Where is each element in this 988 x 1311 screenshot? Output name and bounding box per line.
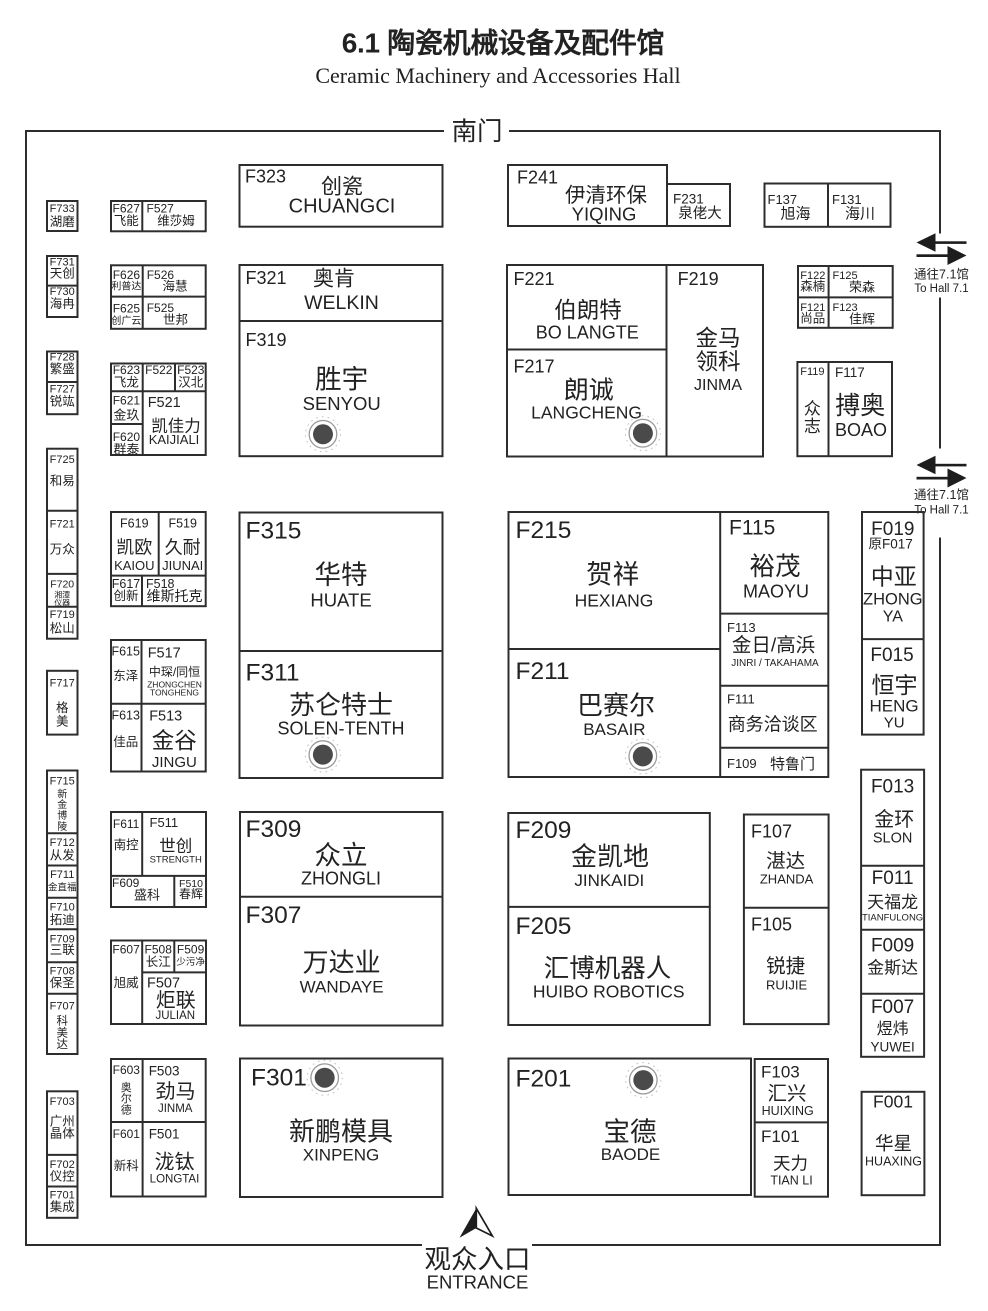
- svg-text:通往7.1馆: 通往7.1馆: [914, 266, 969, 281]
- svg-text:海川: 海川: [845, 206, 875, 223]
- svg-text:WANDAYE: WANDAYE: [300, 978, 384, 997]
- svg-text:原F017: 原F017: [868, 537, 912, 552]
- svg-text:F241: F241: [517, 167, 558, 187]
- svg-text:RUIJIE: RUIJIE: [766, 978, 808, 993]
- svg-text:奥: 奥: [121, 1080, 132, 1094]
- svg-text:东泽: 东泽: [113, 669, 138, 683]
- svg-text:HUAXING: HUAXING: [865, 1154, 922, 1168]
- svg-text:创广云: 创广云: [111, 314, 141, 327]
- svg-text:宝德: 宝德: [604, 1117, 657, 1147]
- svg-text:巴赛尔: 巴赛尔: [577, 690, 655, 720]
- svg-text:佳辉: 佳辉: [849, 311, 875, 326]
- svg-text:YU: YU: [884, 715, 905, 732]
- svg-text:盛科: 盛科: [134, 887, 160, 902]
- svg-text:旭威: 旭威: [114, 976, 140, 990]
- svg-text:F710: F710: [50, 901, 75, 913]
- svg-text:LANGCHENG: LANGCHENG: [531, 403, 642, 423]
- svg-text:F107: F107: [751, 821, 792, 841]
- svg-text:F625: F625: [113, 301, 141, 315]
- svg-text:KAIOU: KAIOU: [114, 558, 154, 573]
- svg-text:F321: F321: [246, 268, 287, 288]
- svg-text:F117: F117: [835, 365, 865, 380]
- svg-text:金谷: 金谷: [152, 728, 197, 753]
- svg-text:F721: F721: [50, 519, 75, 531]
- svg-text:HUIBO ROBOTICS: HUIBO ROBOTICS: [533, 982, 685, 1002]
- svg-text:F613: F613: [111, 708, 140, 722]
- svg-text:F221: F221: [514, 269, 555, 289]
- svg-text:天创: 天创: [50, 267, 75, 281]
- svg-text:F607: F607: [112, 943, 140, 957]
- svg-text:F319: F319: [246, 330, 287, 350]
- svg-text:观众入口: 观众入口: [425, 1245, 531, 1275]
- svg-text:金玖: 金玖: [113, 408, 139, 423]
- svg-text:TIAN LI: TIAN LI: [770, 1173, 812, 1187]
- svg-text:保圣: 保圣: [50, 976, 76, 990]
- svg-text:众立: 众立: [315, 840, 368, 870]
- svg-text:创新: 创新: [113, 588, 138, 603]
- svg-text:特鲁门: 特鲁门: [770, 756, 815, 773]
- svg-text:F719: F719: [50, 609, 75, 621]
- svg-text:中亚: 中亚: [871, 563, 917, 589]
- svg-text:煜炜: 煜炜: [877, 1020, 909, 1038]
- svg-text:F513: F513: [149, 709, 182, 725]
- svg-text:F231: F231: [673, 192, 704, 207]
- svg-text:YA: YA: [883, 609, 903, 626]
- svg-text:德: 德: [121, 1102, 132, 1116]
- svg-text:维莎姆: 维莎姆: [157, 214, 195, 228]
- svg-text:天福龙: 天福龙: [867, 893, 918, 912]
- svg-text:凯欧: 凯欧: [116, 537, 152, 557]
- svg-text:ZHONG: ZHONG: [863, 591, 923, 609]
- svg-text:春辉: 春辉: [179, 887, 203, 901]
- svg-text:尚品: 尚品: [800, 312, 825, 326]
- svg-text:领科: 领科: [695, 350, 740, 375]
- svg-text:BASAIR: BASAIR: [583, 720, 645, 739]
- svg-text:金斯达: 金斯达: [867, 958, 918, 977]
- svg-text:金马: 金马: [695, 326, 740, 351]
- svg-text:F601: F601: [113, 1127, 141, 1141]
- svg-text:JINMA: JINMA: [694, 377, 742, 394]
- svg-text:JINRI / TAKAHAMA: JINRI / TAKAHAMA: [731, 658, 819, 669]
- svg-text:飞龙: 飞龙: [114, 375, 139, 389]
- svg-text:LONGTAI: LONGTAI: [150, 1174, 200, 1186]
- svg-text:TIANFULONG: TIANFULONG: [862, 912, 923, 923]
- svg-text:科: 科: [56, 1014, 68, 1028]
- svg-text:万达业: 万达业: [303, 947, 381, 977]
- svg-text:ZHONGLI: ZHONGLI: [301, 868, 381, 888]
- svg-text:SOLEN-TENTH: SOLEN-TENTH: [277, 718, 404, 738]
- svg-text:湖磨: 湖磨: [50, 214, 76, 229]
- svg-text:F619: F619: [120, 517, 149, 531]
- svg-text:JINGU: JINGU: [152, 754, 197, 771]
- svg-text:锐捷: 锐捷: [766, 956, 805, 978]
- svg-text:HUATE: HUATE: [310, 589, 371, 610]
- svg-text:仪器: 仪器: [54, 599, 70, 608]
- svg-text:金日/高浜: 金日/高浜: [732, 634, 815, 656]
- svg-text:繁盛: 繁盛: [50, 361, 75, 376]
- svg-text:YUWEI: YUWEI: [870, 1039, 914, 1054]
- svg-text:KAIJIALI: KAIJIALI: [149, 432, 200, 447]
- svg-text:F509: F509: [177, 943, 205, 957]
- svg-text:F105: F105: [751, 915, 792, 935]
- svg-text:松山: 松山: [50, 621, 75, 635]
- svg-text:F103: F103: [761, 1063, 800, 1082]
- svg-text:F013: F013: [871, 777, 914, 798]
- svg-text:F307: F307: [246, 902, 302, 929]
- svg-text:新科: 新科: [114, 1158, 140, 1173]
- svg-text:陵: 陵: [57, 821, 67, 833]
- svg-text:志: 志: [804, 417, 821, 436]
- svg-text:伯朗特: 伯朗特: [554, 298, 622, 323]
- svg-text:SENYOU: SENYOU: [303, 393, 381, 414]
- svg-text:F720: F720: [50, 578, 74, 590]
- svg-text:JINKAIDI: JINKAIDI: [574, 871, 644, 890]
- svg-text:新: 新: [57, 787, 67, 800]
- svg-text:炬联: 炬联: [156, 989, 196, 1012]
- svg-text:F711: F711: [50, 869, 74, 881]
- svg-text:中琛/同恒: 中琛/同恒: [149, 664, 200, 679]
- svg-text:华星: 华星: [875, 1133, 912, 1154]
- svg-text:JULIAN: JULIAN: [155, 1010, 195, 1022]
- svg-text:裕茂: 裕茂: [750, 553, 801, 581]
- svg-text:F219: F219: [678, 269, 719, 289]
- svg-text:金直福: 金直福: [48, 882, 77, 894]
- svg-text:F522: F522: [145, 363, 173, 377]
- svg-text:F301: F301: [251, 1065, 307, 1092]
- svg-text:仪控: 仪控: [50, 1170, 76, 1184]
- svg-text:奥肯: 奥肯: [313, 268, 355, 291]
- svg-text:泷钛: 泷钛: [155, 1151, 195, 1174]
- svg-text:晶体: 晶体: [50, 1127, 76, 1141]
- svg-text:SLON: SLON: [873, 831, 913, 847]
- svg-text:拓迪: 拓迪: [50, 913, 75, 927]
- svg-text:尔: 尔: [121, 1092, 132, 1105]
- svg-text:F001: F001: [873, 1091, 913, 1111]
- svg-text:胜宇: 胜宇: [315, 365, 368, 395]
- svg-text:汇兴: 汇兴: [767, 1083, 806, 1105]
- svg-text:三联: 三联: [50, 943, 76, 957]
- svg-text:F615: F615: [111, 645, 140, 659]
- svg-text:群泰: 群泰: [113, 442, 139, 457]
- svg-text:Ceramic Machinery and Accessor: Ceramic Machinery and Accessories Hall: [315, 63, 680, 88]
- svg-text:BOAO: BOAO: [835, 420, 887, 440]
- svg-text:新鹏模具: 新鹏模具: [289, 1117, 393, 1147]
- svg-text:汉北: 汉北: [178, 375, 204, 389]
- svg-text:达: 达: [56, 1037, 68, 1051]
- svg-text:美: 美: [56, 1025, 68, 1039]
- svg-text:WELKIN: WELKIN: [304, 292, 379, 314]
- svg-text:集成: 集成: [50, 1199, 75, 1214]
- svg-text:F101: F101: [761, 1127, 800, 1146]
- svg-text:To Hall 7.1: To Hall 7.1: [914, 504, 968, 516]
- svg-text:美: 美: [56, 715, 69, 729]
- svg-text:TONGHENG: TONGHENG: [150, 688, 199, 698]
- svg-text:F119: F119: [800, 366, 824, 378]
- svg-text:通往7.1馆: 通往7.1馆: [914, 487, 969, 502]
- svg-text:劲马: 劲马: [156, 1080, 196, 1103]
- svg-text:商务洽谈区: 商务洽谈区: [728, 714, 818, 734]
- svg-text:To Hall 7.1: To Hall 7.1: [914, 283, 968, 295]
- svg-text:F201: F201: [516, 1066, 572, 1093]
- svg-text:BAODE: BAODE: [601, 1145, 661, 1164]
- svg-text:F315: F315: [246, 517, 302, 544]
- svg-text:JIUNAI: JIUNAI: [162, 558, 203, 573]
- svg-text:F311: F311: [246, 660, 300, 687]
- svg-text:金环: 金环: [874, 808, 914, 831]
- svg-text:泉佬大: 泉佬大: [678, 205, 722, 222]
- svg-text:世邦: 世邦: [163, 313, 188, 327]
- svg-text:维斯托克: 维斯托克: [147, 588, 203, 604]
- svg-text:金: 金: [57, 798, 67, 811]
- svg-text:F323: F323: [245, 166, 286, 186]
- svg-text:森楠: 森楠: [800, 279, 825, 294]
- svg-text:F011: F011: [872, 868, 914, 889]
- svg-text:格: 格: [56, 700, 69, 715]
- svg-text:F215: F215: [516, 517, 572, 544]
- svg-text:F519: F519: [168, 517, 197, 531]
- svg-text:F703: F703: [50, 1096, 75, 1108]
- svg-text:XINPENG: XINPENG: [303, 1145, 380, 1164]
- svg-text:朗诚: 朗诚: [564, 376, 614, 404]
- svg-text:华特: 华特: [315, 560, 368, 590]
- svg-text:F733: F733: [50, 203, 75, 215]
- svg-text:F611: F611: [113, 817, 140, 831]
- svg-text:F717: F717: [50, 678, 75, 690]
- svg-text:F007: F007: [871, 997, 914, 1018]
- svg-text:利普达: 利普达: [111, 279, 141, 292]
- svg-text:F309: F309: [246, 816, 302, 843]
- svg-text:飞能: 飞能: [114, 214, 140, 228]
- svg-text:湛达: 湛达: [766, 851, 805, 873]
- svg-text:南门: 南门: [451, 118, 502, 146]
- svg-text:ENTRANCE: ENTRANCE: [427, 1271, 529, 1292]
- svg-text:F501: F501: [149, 1127, 180, 1142]
- svg-text:F603: F603: [113, 1063, 141, 1077]
- svg-text:F109: F109: [727, 756, 757, 771]
- svg-text:万众: 万众: [50, 543, 75, 557]
- svg-text:F205: F205: [516, 913, 572, 940]
- svg-text:F517: F517: [148, 646, 181, 662]
- svg-text:和易: 和易: [50, 474, 75, 488]
- svg-text:F113: F113: [727, 620, 756, 635]
- svg-text:STRENGTH: STRENGTH: [150, 854, 202, 865]
- svg-text:佳品: 佳品: [113, 735, 138, 749]
- svg-text:贺祥: 贺祥: [586, 560, 639, 590]
- svg-text:天力: 天力: [773, 1153, 808, 1173]
- svg-text:HUIXING: HUIXING: [762, 1104, 814, 1118]
- svg-text:F503: F503: [149, 1064, 180, 1079]
- svg-text:HEXIANG: HEXIANG: [575, 590, 654, 610]
- svg-text:搏奥: 搏奥: [835, 392, 885, 420]
- svg-text:F111: F111: [727, 692, 755, 707]
- svg-text:F626: F626: [113, 268, 141, 282]
- svg-text:南控: 南控: [114, 837, 140, 852]
- svg-text:ZHANDA: ZHANDA: [760, 872, 814, 887]
- svg-text:HENG: HENG: [870, 696, 919, 715]
- svg-text:F009: F009: [871, 936, 914, 957]
- svg-text:JINMA: JINMA: [158, 1103, 193, 1115]
- svg-text:F712: F712: [50, 837, 75, 849]
- svg-text:荣森: 荣森: [849, 280, 875, 295]
- svg-text:F707: F707: [50, 1001, 75, 1013]
- svg-text:海慧: 海慧: [162, 278, 187, 293]
- svg-text:MAOYU: MAOYU: [743, 582, 809, 602]
- svg-text:F715: F715: [50, 776, 75, 788]
- svg-text:世创: 世创: [159, 837, 192, 856]
- svg-text:苏仑特士: 苏仑特士: [289, 690, 393, 720]
- svg-text:BO LANGTE: BO LANGTE: [536, 323, 639, 343]
- svg-text:F725: F725: [50, 454, 75, 466]
- svg-text:YIQING: YIQING: [572, 203, 637, 224]
- svg-text:F115: F115: [729, 517, 775, 540]
- svg-text:F217: F217: [514, 356, 555, 376]
- svg-text:久耐: 久耐: [165, 537, 201, 557]
- svg-text:众: 众: [804, 400, 821, 419]
- svg-text:6.1 陶瓷机械设备及配件馆: 6.1 陶瓷机械设备及配件馆: [342, 27, 665, 59]
- svg-text:海冉: 海冉: [50, 296, 75, 311]
- svg-text:锐竑: 锐竑: [50, 394, 76, 408]
- svg-text:从发: 从发: [50, 848, 76, 863]
- svg-text:旭海: 旭海: [780, 206, 810, 223]
- svg-text:F015: F015: [870, 645, 913, 666]
- svg-text:恒宇: 恒宇: [872, 672, 918, 698]
- svg-text:F621: F621: [113, 394, 141, 408]
- svg-text:F511: F511: [150, 815, 179, 830]
- svg-text:长江: 长江: [146, 955, 171, 969]
- svg-text:F521: F521: [148, 395, 181, 411]
- svg-text:汇博机器人: 汇博机器人: [544, 955, 672, 983]
- svg-text:F209: F209: [516, 817, 572, 844]
- svg-text:博: 博: [57, 809, 67, 822]
- svg-text:F211: F211: [516, 658, 570, 685]
- svg-text:金凯地: 金凯地: [571, 841, 649, 871]
- svg-text:少污净: 少污净: [176, 956, 205, 968]
- svg-text:CHUANGCI: CHUANGCI: [289, 196, 396, 218]
